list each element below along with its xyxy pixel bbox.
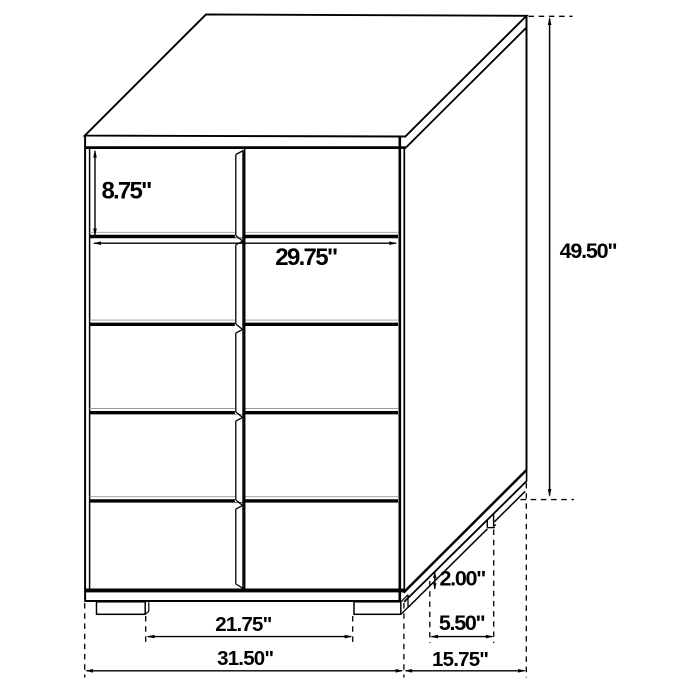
svg-text:8.75": 8.75" — [102, 178, 152, 205]
svg-text:15.75": 15.75" — [432, 648, 488, 671]
svg-text:5.50": 5.50" — [439, 611, 485, 635]
svg-text:29.75": 29.75" — [275, 244, 337, 271]
svg-text:31.50": 31.50" — [217, 647, 273, 670]
svg-text:21.75": 21.75" — [215, 613, 271, 636]
svg-text:49.50": 49.50" — [560, 239, 617, 263]
svg-text:2.00": 2.00" — [440, 567, 486, 591]
